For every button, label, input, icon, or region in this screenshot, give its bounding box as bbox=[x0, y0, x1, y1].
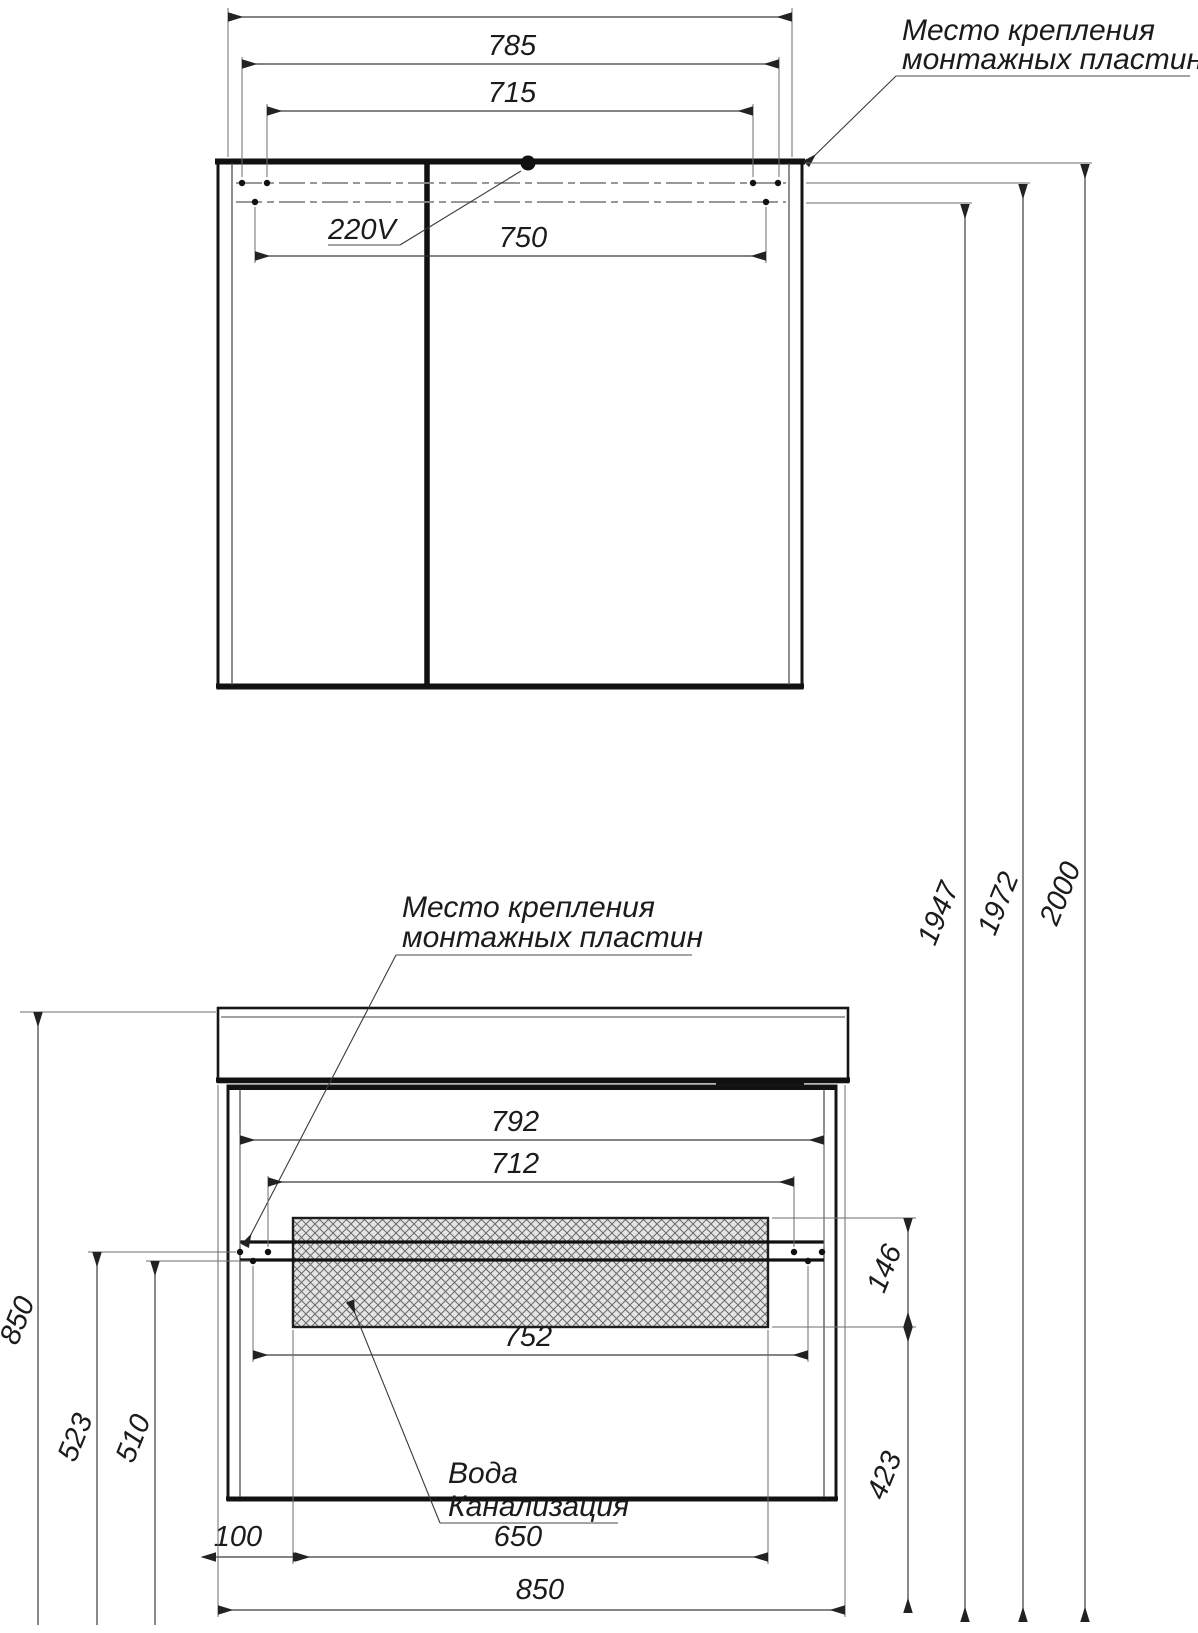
power-connection-dot bbox=[521, 156, 536, 171]
water-label: Вода bbox=[448, 1457, 518, 1490]
mounting-dot bbox=[250, 1258, 256, 1264]
sewer-label: Канализация bbox=[448, 1490, 629, 1523]
dim-510-label: 510 bbox=[110, 1410, 158, 1467]
technical-drawing-sheet: 220V 785 715 750 Место крепления монтажн… bbox=[0, 0, 1198, 1633]
mounting-dot bbox=[775, 180, 781, 186]
dim-423-label: 423 bbox=[861, 1447, 909, 1504]
mounting-dot bbox=[265, 1249, 271, 1255]
dim-785-label: 785 bbox=[488, 30, 537, 62]
vanity-cabinet-front-view: Место крепления монтажных пластин Вода К… bbox=[0, 891, 916, 1625]
height-dimensions: 1947 1972 2000 bbox=[806, 163, 1092, 1622]
mounting-dot bbox=[791, 1249, 797, 1255]
mirror-cabinet-front-view: 220V 785 715 750 Место крепления монтажн… bbox=[215, 8, 1198, 688]
left-side-dimensions: 850 523 510 bbox=[0, 1012, 250, 1625]
dim-715-label: 715 bbox=[488, 77, 537, 109]
dim-1947-label: 1947 bbox=[912, 876, 967, 950]
dim-850-width-label: 850 bbox=[516, 1574, 564, 1606]
mounting-dot bbox=[239, 180, 245, 186]
dim-850-height-label: 850 bbox=[0, 1292, 42, 1349]
mounting-dot bbox=[264, 180, 270, 186]
mounting-plates-annotation-top: Место крепления монтажных пластин bbox=[806, 14, 1198, 164]
dim-523-label: 523 bbox=[52, 1409, 100, 1466]
dim-100-label: 100 bbox=[214, 1521, 262, 1553]
mounting-dot bbox=[819, 1249, 825, 1255]
annotation-line2: монтажных пластин bbox=[902, 43, 1198, 76]
dim-792-label: 792 bbox=[491, 1106, 539, 1138]
mounting-dot bbox=[237, 1249, 243, 1255]
mounting-dot bbox=[750, 180, 756, 186]
mounting-dot bbox=[252, 199, 258, 205]
dim-712-label: 712 bbox=[491, 1148, 539, 1180]
mounting-dot bbox=[763, 199, 769, 205]
dim-146-label: 146 bbox=[861, 1239, 909, 1297]
countertop-outline bbox=[218, 1008, 848, 1082]
annotation-line1: Место крепления bbox=[402, 891, 655, 924]
annotation-leader bbox=[806, 76, 896, 164]
annotation-line2: монтажных пластин bbox=[402, 921, 703, 954]
power-label: 220V bbox=[327, 214, 398, 246]
mounting-dot bbox=[805, 1258, 811, 1264]
dim-650-label: 650 bbox=[494, 1521, 542, 1553]
installation-diagram: 220V 785 715 750 Место крепления монтажн… bbox=[0, 0, 1198, 1633]
dim-2000-label: 2000 bbox=[1033, 858, 1087, 931]
dim-750-label: 750 bbox=[499, 222, 547, 254]
water-sewer-access-hatch bbox=[293, 1218, 768, 1327]
dim-1972-label: 1972 bbox=[972, 868, 1026, 940]
dim-752-label: 752 bbox=[504, 1321, 552, 1353]
